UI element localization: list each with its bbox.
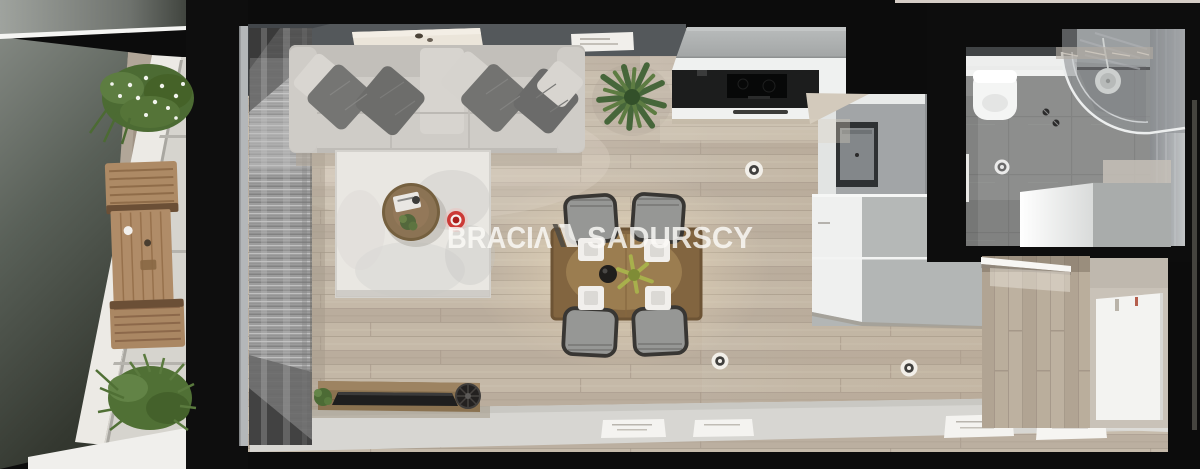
svg-text:SADURSCY: SADURSCY <box>587 220 753 255</box>
svg-text:BRACIΛ: BRACIΛ <box>447 220 552 255</box>
